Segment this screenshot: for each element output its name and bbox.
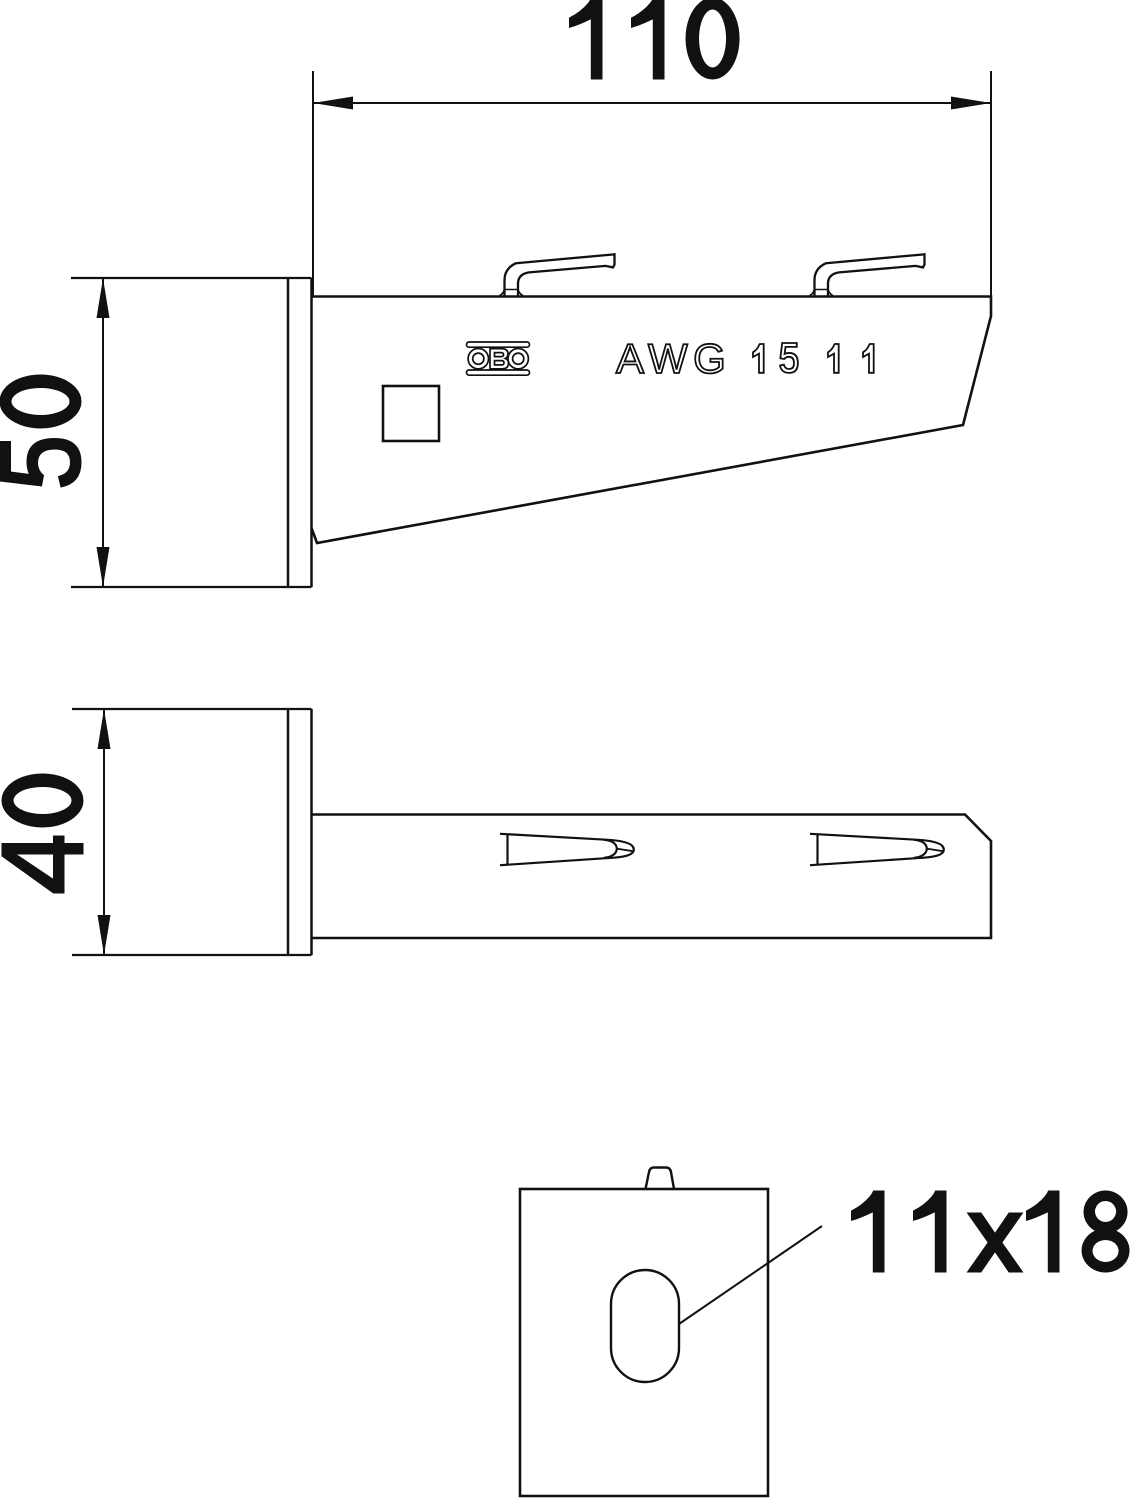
svg-text:AWG: AWG <box>616 335 731 382</box>
